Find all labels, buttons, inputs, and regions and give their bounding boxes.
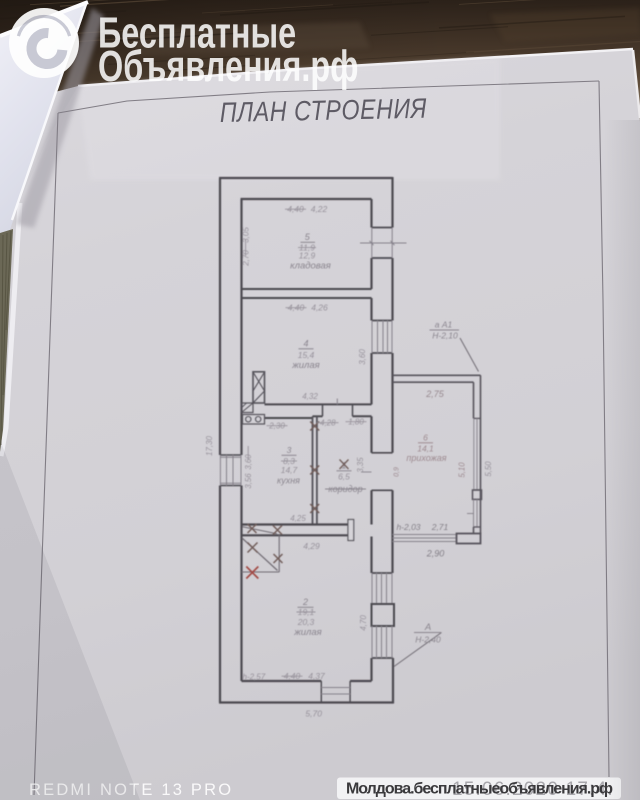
svg-text:4,25: 4,25 [290,514,306,523]
svg-text:h-2,57: h-2,57 [242,673,265,682]
svg-text:а А1: а А1 [435,320,453,330]
svg-text:3,35: 3,35 [356,457,365,473]
svg-text:А: А [424,622,431,633]
svg-text:2,90: 2,90 [426,549,445,559]
svg-text:0,9: 0,9 [394,467,401,477]
svg-text:14,1: 14,1 [417,444,434,454]
svg-text:5,10: 5,10 [458,462,467,478]
svg-text:жилая: жилая [293,627,322,638]
svg-text:жилая: жилая [291,360,320,371]
svg-text:Н-2,40: Н-2,40 [415,635,441,645]
svg-text:4,70: 4,70 [359,615,368,631]
svg-text:кухня: кухня [277,476,300,486]
svg-text:14,7: 14,7 [281,465,298,475]
svg-text:h-2,03: h-2,03 [396,522,420,532]
svg-text:4,37: 4,37 [308,671,325,681]
svg-text:4,32: 4,32 [302,392,318,401]
svg-text:20,3: 20,3 [297,617,315,627]
svg-text:4: 4 [303,339,308,349]
svg-text:3: 3 [287,445,292,455]
svg-text:кладовая: кладовая [290,261,331,272]
svg-text:17,30: 17,30 [205,435,214,456]
svg-text:5,50: 5,50 [484,461,493,477]
svg-text:4,29: 4,29 [303,541,320,551]
svg-text:12,9: 12,9 [299,251,316,261]
svg-text:4,26: 4,26 [311,303,328,313]
svg-text:6: 6 [423,433,428,443]
svg-text:2: 2 [302,597,308,607]
svg-text:Молдова.бесплатныеобъявления.р: Молдова.бесплатныеобъявления.рф [346,781,613,798]
svg-text:ПЛАН СТРОЕНИЯ: ПЛАН СТРОЕНИЯ [219,94,427,129]
svg-text:4,22: 4,22 [311,204,328,214]
svg-text:2,71: 2,71 [431,522,449,532]
svg-text:Объявления.рф: Объявления.рф [98,42,358,91]
svg-text:прихожая: прихожая [406,453,446,463]
svg-text:2,75: 2,75 [425,389,445,399]
svg-text:5,70: 5,70 [305,709,322,719]
svg-text:3,56: 3,56 [244,473,253,489]
svg-text:3,60: 3,60 [358,349,367,365]
svg-text:15,4: 15,4 [298,350,315,360]
svg-text:6,5: 6,5 [338,472,350,482]
svg-text:Н-2,10: Н-2,10 [432,331,458,341]
